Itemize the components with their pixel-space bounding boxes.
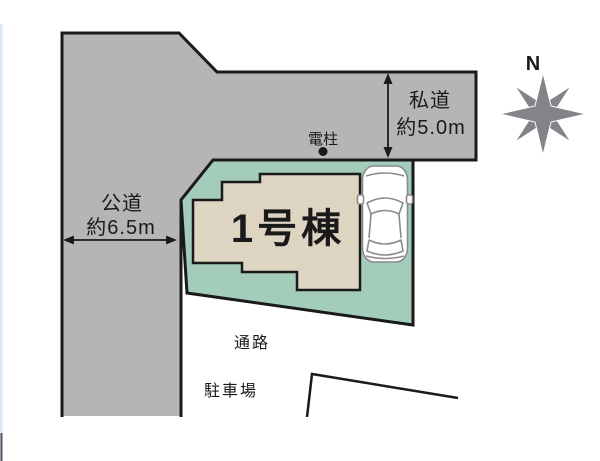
site-plan-diagram: 1号棟 電柱 私道 約5.0m 公道 約6.5m 通路 駐車場 N bbox=[0, 0, 600, 461]
page-edge-strip bbox=[0, 24, 3, 461]
site-plan-canvas: 1号棟 電柱 私道 約5.0m 公道 約6.5m 通路 駐車場 N bbox=[0, 0, 600, 461]
car-icon bbox=[358, 166, 413, 262]
public-road-label: 公道 bbox=[101, 192, 143, 215]
compass-north-label: N bbox=[526, 53, 540, 75]
parking-label: 駐車場 bbox=[204, 382, 258, 400]
utility-pole-label: 電柱 bbox=[308, 131, 338, 148]
page-edge-strip-dark-segment bbox=[1, 433, 3, 461]
utility-pole-dot-icon bbox=[319, 147, 328, 156]
building-label: 1号棟 bbox=[231, 207, 345, 251]
private-road-width-label: 約5.0m bbox=[396, 116, 465, 139]
passage-label: 通路 bbox=[234, 334, 270, 352]
parking-boundary-line bbox=[307, 374, 458, 417]
compass-rose-icon: N bbox=[500, 53, 586, 155]
private-road-label: 私道 bbox=[409, 89, 451, 112]
public-road-width-label: 約6.5m bbox=[86, 216, 155, 239]
